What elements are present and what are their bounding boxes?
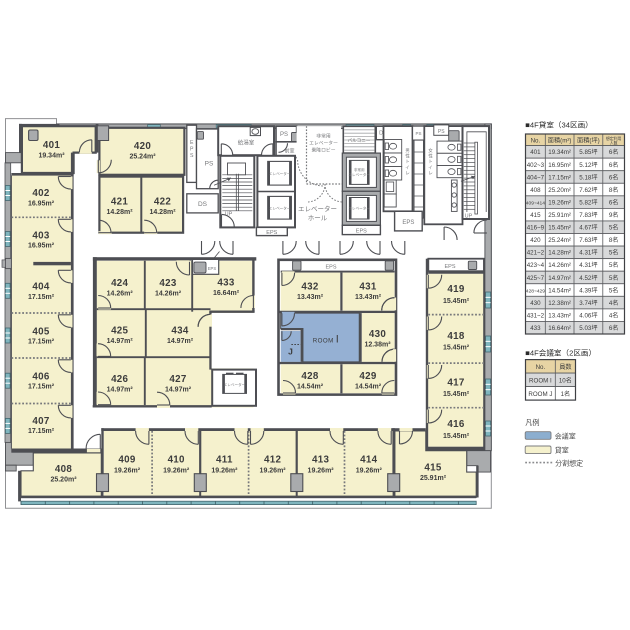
svg-text:面積(m²): 面積(m²) bbox=[548, 137, 572, 145]
svg-text:PS: PS bbox=[205, 161, 214, 168]
svg-text:17.15m²: 17.15m² bbox=[548, 174, 571, 181]
svg-text:14.97m²: 14.97m² bbox=[107, 338, 134, 345]
svg-text:1名: 1名 bbox=[561, 390, 571, 398]
svg-text:凡例: 凡例 bbox=[525, 418, 539, 427]
svg-text:EPS: EPS bbox=[444, 264, 455, 270]
svg-text:15.45m²: 15.45m² bbox=[443, 298, 470, 305]
svg-text:5名: 5名 bbox=[609, 286, 619, 294]
svg-text:14.54m²: 14.54m² bbox=[297, 383, 324, 390]
svg-text:430: 430 bbox=[530, 300, 541, 307]
svg-text:410: 410 bbox=[168, 455, 185, 466]
svg-text:4.31坪: 4.31坪 bbox=[579, 261, 597, 269]
svg-text:会議室: 会議室 bbox=[555, 431, 576, 440]
svg-text:25.24m²: 25.24m² bbox=[129, 154, 156, 161]
svg-text:13.43m²: 13.43m² bbox=[297, 294, 324, 301]
svg-text:4名: 4名 bbox=[609, 311, 619, 319]
svg-text:421: 421 bbox=[111, 197, 128, 208]
svg-text:J: J bbox=[288, 347, 293, 357]
svg-text:402~3: 402~3 bbox=[527, 162, 545, 169]
svg-text:4.31坪: 4.31坪 bbox=[579, 249, 597, 257]
svg-text:エレベーター: エレベーター bbox=[298, 204, 337, 213]
svg-text:408: 408 bbox=[55, 464, 72, 475]
svg-text:19.26m²: 19.26m² bbox=[356, 467, 383, 474]
svg-text:421~2: 421~2 bbox=[527, 250, 545, 257]
svg-text:4.67坪: 4.67坪 bbox=[579, 224, 597, 232]
svg-text:6名: 6名 bbox=[609, 148, 619, 156]
svg-text:426: 426 bbox=[111, 374, 128, 385]
svg-text:415: 415 bbox=[424, 463, 441, 474]
svg-text:25.91m²: 25.91m² bbox=[420, 475, 447, 482]
svg-text:15.45m²: 15.45m² bbox=[443, 345, 470, 352]
svg-text:5名: 5名 bbox=[609, 261, 619, 269]
svg-text:給湯室: 給湯室 bbox=[238, 139, 255, 147]
svg-text:419: 419 bbox=[447, 284, 464, 295]
svg-text:432: 432 bbox=[301, 282, 318, 293]
svg-text:13.43m²: 13.43m² bbox=[548, 312, 571, 319]
svg-text:408: 408 bbox=[530, 187, 541, 194]
svg-text:PS: PS bbox=[415, 131, 421, 136]
svg-text:433: 433 bbox=[530, 325, 541, 332]
svg-text:No.: No. bbox=[531, 138, 541, 145]
svg-text:433: 433 bbox=[217, 278, 234, 289]
svg-text:10名: 10名 bbox=[559, 376, 572, 384]
svg-text:4.06坪: 4.06坪 bbox=[579, 311, 597, 319]
svg-text:PS: PS bbox=[438, 129, 445, 135]
svg-text:14.28m²: 14.28m² bbox=[106, 209, 133, 216]
svg-text:14.26m²: 14.26m² bbox=[107, 290, 134, 297]
svg-text:ROOM I: ROOM I bbox=[529, 377, 552, 384]
svg-text:15.45m²: 15.45m² bbox=[548, 225, 571, 232]
svg-text:15.45m²: 15.45m² bbox=[443, 391, 470, 398]
svg-text:406: 406 bbox=[32, 372, 49, 383]
svg-text:5名: 5名 bbox=[609, 274, 619, 282]
svg-text:エレベーター: エレベーター bbox=[309, 140, 338, 147]
svg-text:EPS: EPS bbox=[356, 229, 367, 235]
svg-text:434: 434 bbox=[171, 326, 188, 337]
svg-text:14.97m²: 14.97m² bbox=[107, 386, 134, 393]
svg-text:19.34m²: 19.34m² bbox=[38, 152, 65, 159]
svg-text:DS: DS bbox=[198, 201, 208, 208]
svg-text:6名: 6名 bbox=[609, 161, 619, 169]
svg-text:6名: 6名 bbox=[609, 324, 619, 332]
svg-text:19.34m²: 19.34m² bbox=[548, 149, 571, 156]
svg-text:ホール: ホール bbox=[308, 214, 328, 222]
svg-text:404: 404 bbox=[32, 282, 49, 293]
svg-text:416~9: 416~9 bbox=[527, 225, 545, 232]
svg-text:403: 403 bbox=[32, 231, 49, 242]
svg-text:401: 401 bbox=[530, 149, 541, 156]
svg-text:19.26m²: 19.26m² bbox=[260, 467, 287, 474]
svg-text:5.82坪: 5.82坪 bbox=[579, 198, 597, 206]
svg-text:402: 402 bbox=[32, 188, 49, 199]
svg-text:9名: 9名 bbox=[609, 211, 619, 219]
svg-text:14.28m²: 14.28m² bbox=[548, 250, 571, 257]
svg-text:7.83坪: 7.83坪 bbox=[579, 211, 597, 219]
svg-text:19.26m²: 19.26m² bbox=[308, 467, 335, 474]
svg-text:12.38m²: 12.38m² bbox=[548, 300, 571, 307]
svg-text:EPS: EPS bbox=[190, 140, 194, 159]
svg-text:414: 414 bbox=[360, 455, 377, 466]
svg-text:員数: 員数 bbox=[559, 363, 572, 371]
svg-text:14.97m²: 14.97m² bbox=[165, 386, 192, 393]
svg-text:16.95m²: 16.95m² bbox=[28, 243, 55, 250]
svg-text:ROOM J: ROOM J bbox=[528, 391, 552, 398]
svg-text:エレベーター: エレベーター bbox=[269, 171, 291, 176]
svg-text:エレベーター: エレベーター bbox=[348, 206, 370, 211]
svg-text:25.91m²: 25.91m² bbox=[548, 212, 571, 219]
svg-text:6名: 6名 bbox=[609, 198, 619, 206]
svg-text:非常用: 非常用 bbox=[354, 167, 365, 172]
svg-text:3.74坪: 3.74坪 bbox=[579, 299, 597, 307]
svg-text:13.43m²: 13.43m² bbox=[355, 294, 382, 301]
svg-text:430: 430 bbox=[369, 329, 386, 340]
svg-text:■4F会議室（2区画）: ■4F会議室（2区画） bbox=[525, 347, 596, 357]
svg-text:男性トイレ: 男性トイレ bbox=[405, 148, 410, 175]
svg-text:5名: 5名 bbox=[609, 249, 619, 257]
svg-text:25.20m²: 25.20m² bbox=[50, 476, 77, 483]
svg-text:415: 415 bbox=[530, 212, 541, 219]
svg-text:バルコニー: バルコニー bbox=[348, 138, 371, 143]
svg-text:407: 407 bbox=[32, 416, 49, 427]
svg-text:431~2: 431~2 bbox=[527, 312, 545, 319]
svg-text:420: 420 bbox=[530, 237, 541, 244]
svg-text:418: 418 bbox=[447, 331, 464, 342]
svg-text:422: 422 bbox=[154, 197, 171, 208]
svg-text:8名: 8名 bbox=[609, 186, 619, 194]
svg-text:19.26m²: 19.26m² bbox=[114, 467, 141, 474]
svg-text:PS: PS bbox=[280, 132, 288, 138]
svg-text:5.18坪: 5.18坪 bbox=[579, 173, 597, 181]
svg-text:17.15m²: 17.15m² bbox=[28, 339, 55, 346]
svg-text:4名: 4名 bbox=[609, 299, 619, 307]
svg-text:428: 428 bbox=[301, 371, 318, 382]
svg-text:425: 425 bbox=[111, 326, 128, 337]
svg-text:409: 409 bbox=[118, 455, 135, 466]
svg-text:No.: No. bbox=[536, 364, 546, 371]
svg-text:非常用: 非常用 bbox=[316, 133, 331, 140]
svg-text:14.97m²: 14.97m² bbox=[548, 275, 571, 282]
svg-text:17.15m²: 17.15m² bbox=[28, 294, 55, 301]
svg-text:乗降ロビー: 乗降ロビー bbox=[312, 147, 336, 154]
svg-text:16.95m²: 16.95m² bbox=[548, 162, 571, 169]
svg-text:面積(坪): 面積(坪) bbox=[577, 137, 600, 145]
svg-text:7.62坪: 7.62坪 bbox=[579, 186, 597, 194]
svg-text:15.45m²: 15.45m² bbox=[443, 433, 470, 440]
svg-text:401: 401 bbox=[43, 140, 60, 151]
svg-text:417: 417 bbox=[447, 377, 464, 388]
svg-text:17.15m²: 17.15m² bbox=[28, 384, 55, 391]
svg-text:16.95m²: 16.95m² bbox=[28, 200, 55, 207]
svg-text:427: 427 bbox=[169, 374, 186, 385]
svg-text:420: 420 bbox=[134, 141, 151, 152]
svg-text:5名: 5名 bbox=[609, 224, 619, 232]
svg-text:428~429: 428~429 bbox=[526, 288, 545, 294]
svg-text:6名: 6名 bbox=[609, 173, 619, 181]
svg-text:4.52坪: 4.52坪 bbox=[579, 274, 597, 282]
svg-text:14.97m²: 14.97m² bbox=[167, 338, 194, 345]
svg-text:8名: 8名 bbox=[609, 236, 619, 244]
svg-text:19.26m²: 19.26m² bbox=[163, 467, 190, 474]
svg-text:14.54m²: 14.54m² bbox=[548, 287, 571, 294]
svg-text:EPS: EPS bbox=[325, 264, 336, 270]
svg-text:EPS: EPS bbox=[266, 230, 277, 236]
svg-text:413: 413 bbox=[312, 455, 329, 466]
svg-text:17.15m²: 17.15m² bbox=[28, 428, 55, 435]
svg-text:14.54m²: 14.54m² bbox=[355, 383, 382, 390]
svg-text:16.64m²: 16.64m² bbox=[213, 290, 240, 297]
svg-text:424: 424 bbox=[111, 278, 128, 289]
svg-text:EPS: EPS bbox=[402, 220, 414, 226]
svg-text:人数: 人数 bbox=[610, 140, 618, 145]
svg-text:409~414: 409~414 bbox=[526, 200, 545, 206]
svg-text:411: 411 bbox=[216, 455, 233, 466]
svg-text:EPS: EPS bbox=[208, 266, 217, 271]
svg-text:14.26m²: 14.26m² bbox=[548, 262, 571, 269]
svg-text:425~7: 425~7 bbox=[527, 275, 545, 282]
svg-text:5.12坪: 5.12坪 bbox=[579, 161, 597, 169]
svg-text:エレベーター: エレベーター bbox=[348, 172, 370, 177]
svg-text:女性トイレ: 女性トイレ bbox=[428, 147, 433, 175]
svg-text:412: 412 bbox=[264, 455, 281, 466]
svg-text:14.26m²: 14.26m² bbox=[155, 290, 182, 297]
svg-text:19.26m²: 19.26m² bbox=[211, 467, 238, 474]
svg-text:■4F貸室（34区画）: ■4F貸室（34区画） bbox=[525, 120, 592, 130]
svg-text:16.64m²: 16.64m² bbox=[548, 325, 571, 332]
svg-text:431: 431 bbox=[359, 282, 376, 293]
svg-text:416: 416 bbox=[447, 419, 464, 430]
svg-text:分割想定: 分割想定 bbox=[555, 458, 583, 467]
svg-text:429: 429 bbox=[359, 371, 376, 382]
svg-text:5.85坪: 5.85坪 bbox=[579, 148, 597, 156]
svg-text:7.63坪: 7.63坪 bbox=[579, 236, 597, 244]
svg-text:404~7: 404~7 bbox=[527, 174, 545, 181]
svg-text:25.20m²: 25.20m² bbox=[548, 187, 571, 194]
svg-text:25.24m²: 25.24m² bbox=[548, 237, 571, 244]
svg-text:19.26m²: 19.26m² bbox=[548, 199, 571, 206]
svg-text:405: 405 bbox=[32, 326, 49, 337]
svg-text:4.39坪: 4.39坪 bbox=[579, 286, 597, 294]
svg-text:エレベーター: エレベーター bbox=[269, 206, 291, 211]
svg-text:12.38m²: 12.38m² bbox=[364, 341, 391, 348]
svg-text:423~4: 423~4 bbox=[527, 262, 545, 269]
svg-text:貸室: 貸室 bbox=[555, 446, 569, 455]
svg-text:5.03坪: 5.03坪 bbox=[579, 324, 597, 332]
svg-text:423: 423 bbox=[159, 278, 176, 289]
svg-text:14.28m²: 14.28m² bbox=[149, 209, 176, 216]
svg-text:UP: UP bbox=[465, 214, 473, 220]
svg-text:エレベーター: エレベーター bbox=[224, 382, 246, 387]
